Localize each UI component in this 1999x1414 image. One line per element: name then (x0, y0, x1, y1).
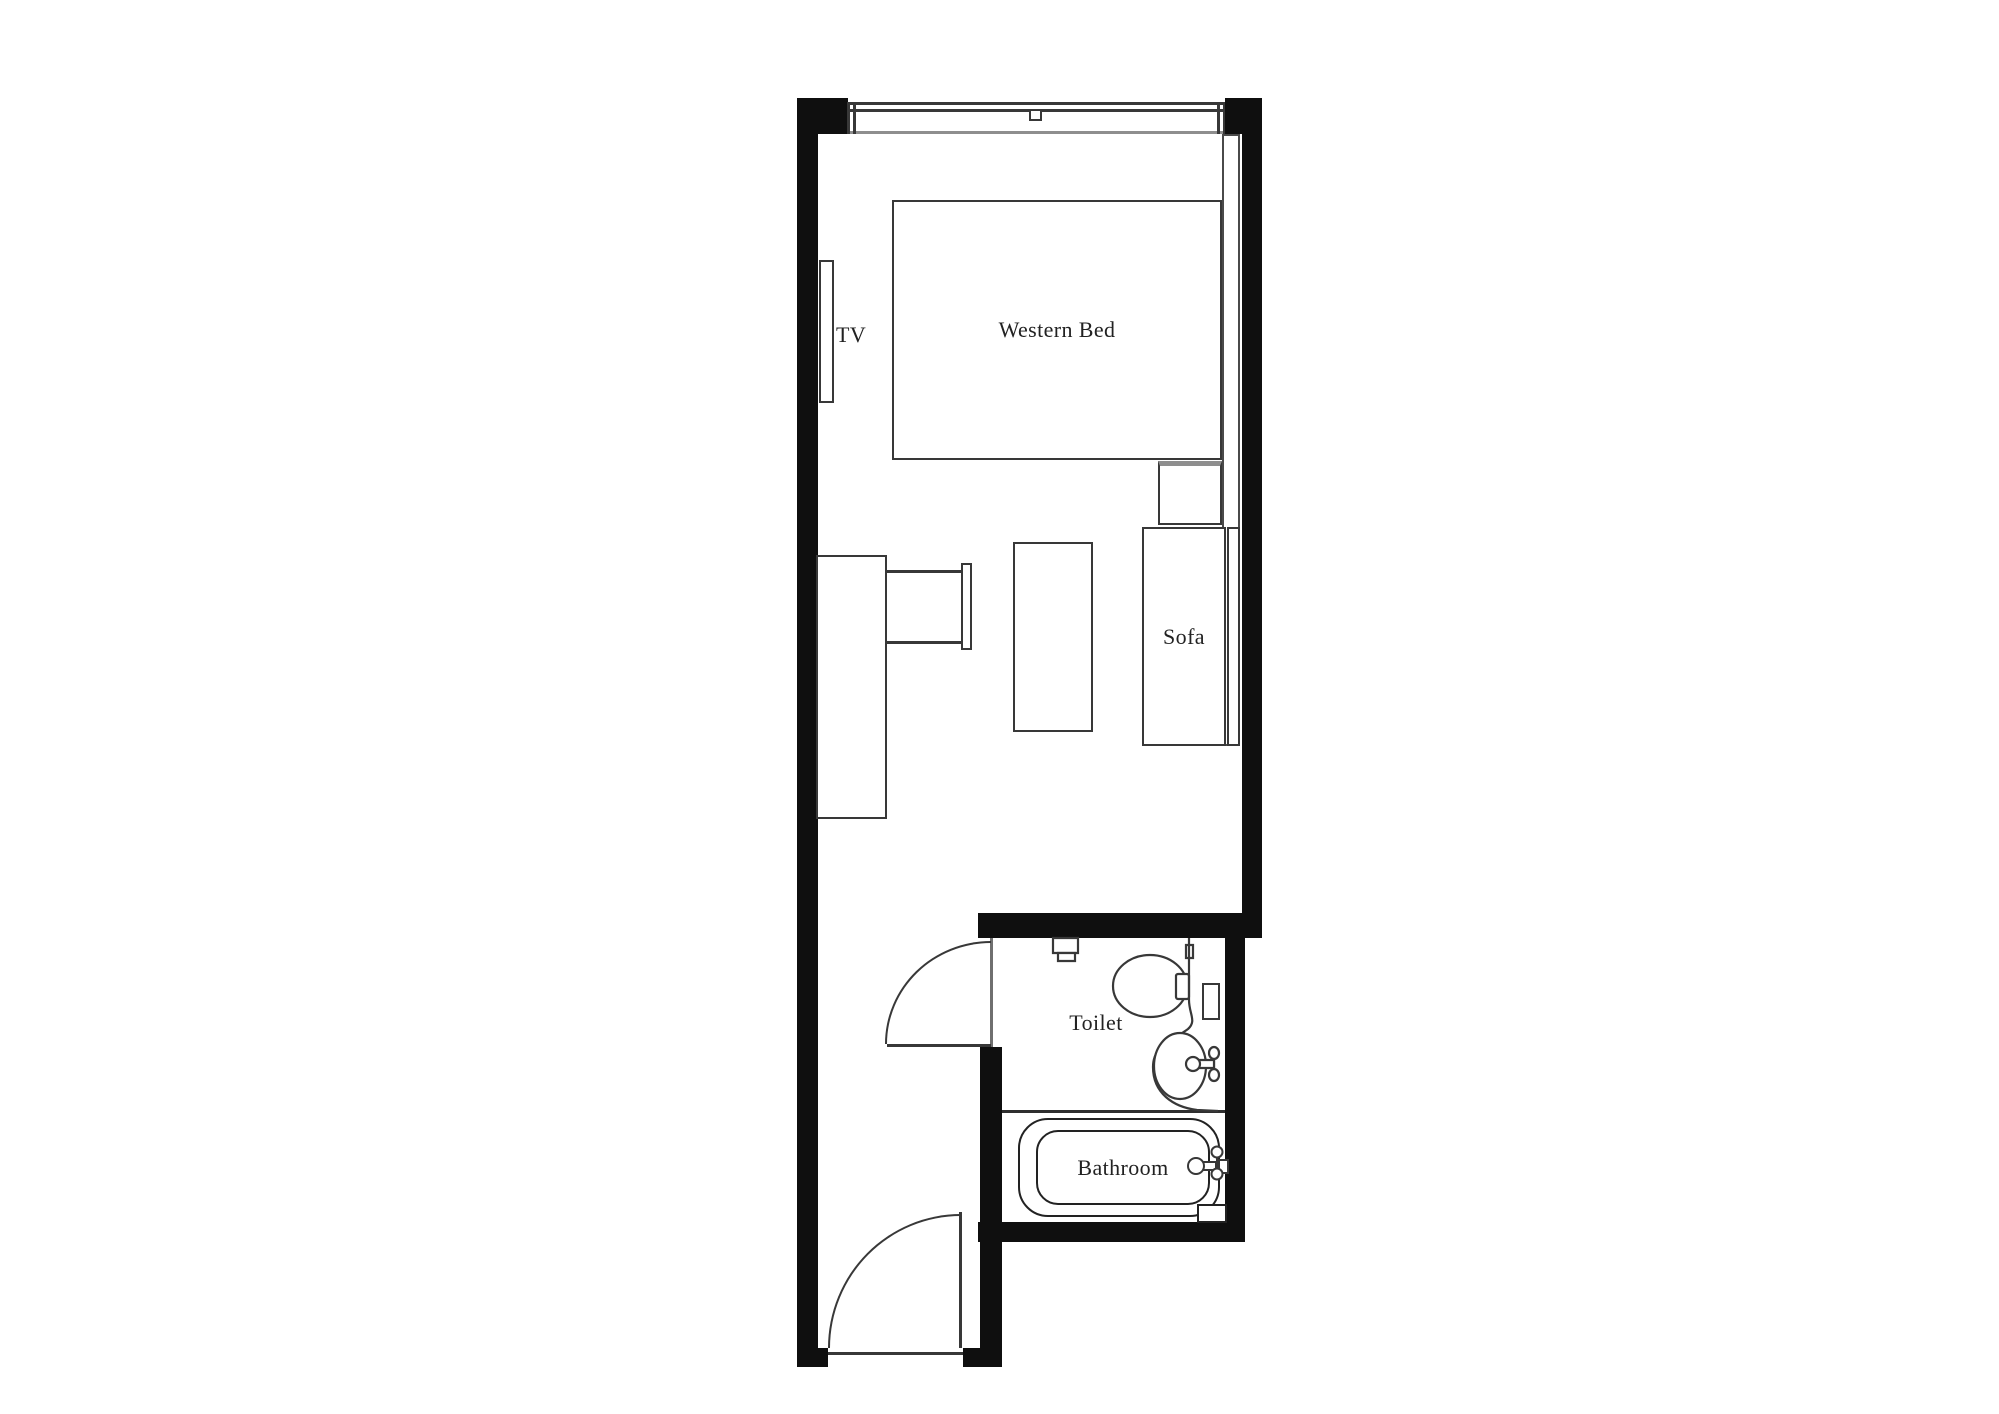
wall-bathroom-left (980, 1047, 1002, 1367)
entrance-door-swing-arc (828, 1214, 961, 1348)
wall-left (797, 98, 818, 1367)
window-outer-line (847, 102, 1225, 105)
desk (816, 555, 887, 819)
chair-seat-line-top (887, 570, 961, 573)
sink-faucet-knob (1186, 1057, 1200, 1071)
sofa-back-panel (1227, 527, 1240, 746)
bathroom-label: Bathroom (1077, 1155, 1168, 1181)
window-mullion (1029, 109, 1042, 121)
sink-handle-top (1209, 1047, 1219, 1059)
nightstand (1158, 461, 1222, 525)
tub-handle-top (1212, 1147, 1223, 1158)
tv-label: TV (836, 322, 866, 348)
coffee-table (1013, 542, 1093, 732)
wall-bottom-right-block (963, 1348, 1002, 1367)
toilet-cistern-inner (1058, 953, 1075, 961)
bathtub-step (1197, 1204, 1227, 1223)
wall-right (1242, 98, 1262, 938)
toilet-label: Toilet (1069, 1010, 1122, 1036)
bathroom-door-leaf-open (887, 1044, 991, 1047)
chair-backrest (961, 563, 972, 650)
wall-bottom-left-stub (797, 1348, 828, 1367)
wall-bathroom-bottom (978, 1222, 1245, 1242)
window-frame-left-a (847, 102, 850, 134)
floor-plan-canvas: Western Bed TV Sofa Toilet (0, 0, 1999, 1414)
tub-handle-bottom (1212, 1169, 1223, 1180)
window-frame-right-a (1217, 102, 1220, 134)
chair-seat-line-bottom (887, 641, 961, 644)
window-sill-line (847, 131, 1225, 134)
sink-handle-bottom (1209, 1069, 1219, 1081)
sofa-label: Sofa (1163, 624, 1205, 650)
wall-corner-top-left (797, 98, 848, 134)
tub-faucet (1180, 1140, 1240, 1190)
window-frame-right-b (1223, 102, 1226, 134)
bathroom-door-swing-arc (885, 941, 991, 1044)
tub-faucet-knob (1188, 1158, 1204, 1174)
window-frame-left-b (853, 102, 856, 134)
entrance-door-threshold (828, 1352, 963, 1355)
tv-panel (819, 260, 834, 403)
toilet-cistern-outer (1053, 938, 1078, 953)
bed-label: Western Bed (999, 317, 1116, 343)
sofa: Sofa (1142, 527, 1226, 746)
western-bed: Western Bed (892, 200, 1222, 460)
toilet-seat (1176, 974, 1189, 999)
